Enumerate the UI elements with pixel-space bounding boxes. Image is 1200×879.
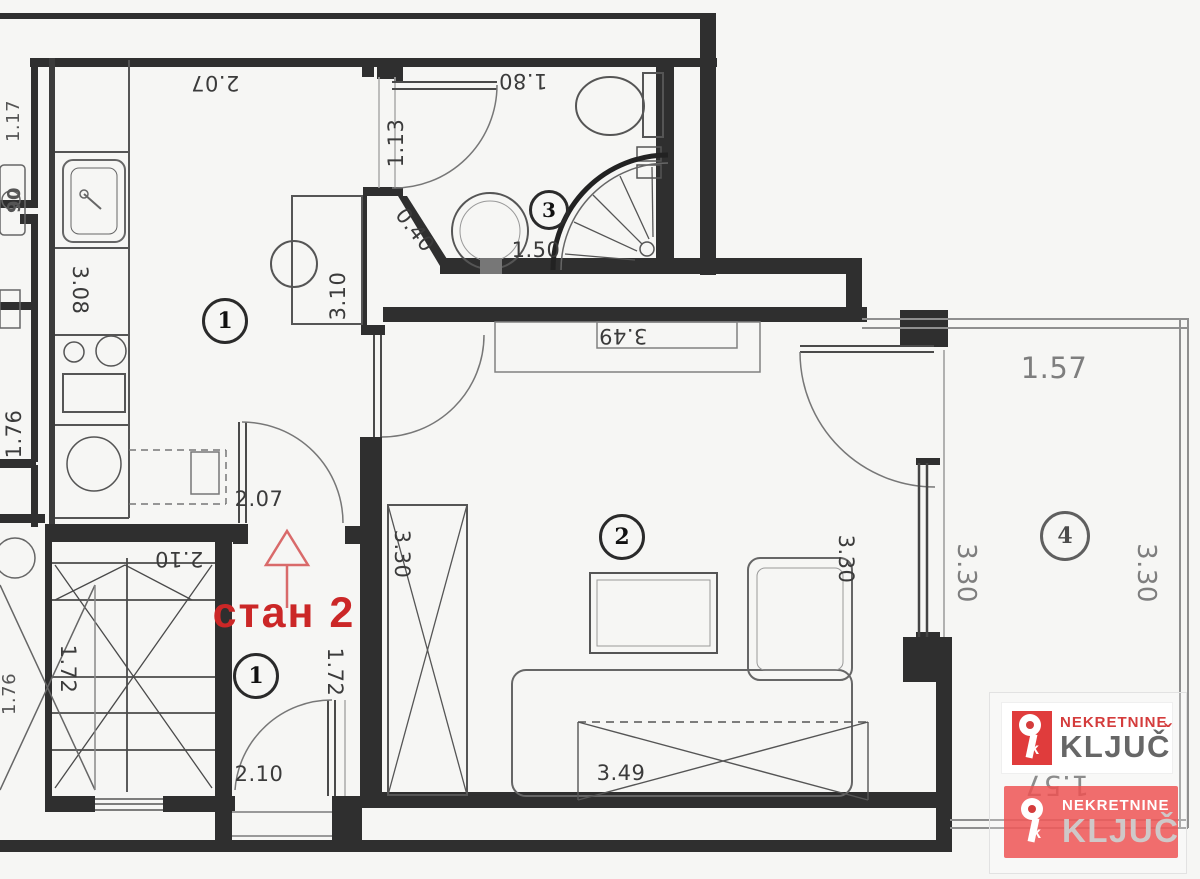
apartment-label: стан 2 [198,586,370,640]
table-icon [590,573,717,653]
room-marker-terrace: 4 [1040,511,1090,561]
dim-kitchen-width-bottom: 2.07 [226,484,292,514]
dim-terrace-width-top: 1.57 [1008,348,1100,388]
room-marker-kitchen: 1 [202,298,248,344]
dim-living-height-left: 3.30 [368,538,436,570]
dim-hall-width: 2.10 [226,758,292,790]
dim-kitchen-shaft: 3.10 [300,280,376,312]
window-staircase [95,796,163,812]
dim-terrace-height-right: 3.30 [1105,555,1187,591]
key-icon: k [1014,795,1054,849]
dim-bath-width: 1.80 [492,66,554,96]
walls [0,13,952,852]
dim-terrace-height-left: 3.30 [925,555,1007,591]
dim-bath-door: 1.13 [361,128,431,158]
kitchen-sink-icon [63,160,125,242]
brand-top-label: NEKRETNINE [1060,715,1171,730]
brand-main-text: KLJUČ [1062,812,1180,849]
toilet-icon [576,73,663,137]
floor-plan-image: 2.07 1.80 1.13 0.40 1.50 3.08 3.10 2.07 … [0,0,1200,879]
stove-icon [63,336,126,412]
dim-kitchen-width-top: 2.07 [183,68,247,98]
dim-neighbor-c: 1.76 [0,418,56,450]
room-marker-bathroom: 3 [529,190,569,230]
agency-logo-red: k NEKRETNINE KLJUČ [1004,786,1178,858]
window-living-room [919,350,944,637]
room-marker-hall: 1 [233,653,279,699]
brand-top-label: NEKRETNINE [1062,798,1180,813]
brand-main-label: KLJUČ [1062,814,1180,847]
kitchen-appliance-dashed [129,450,226,504]
dim-bath-length: 1.50 [505,236,567,264]
door-balcony [800,346,935,487]
key-letter: k [1032,825,1041,843]
door-living-room [374,335,484,437]
room-marker-living: 2 [599,514,645,560]
dim-neighbor-a: 1.17 [0,106,44,136]
brand-main-text: KLJUČ [1060,729,1171,764]
washing-machine-icon [67,437,121,491]
dim-hall-depth: 1.72 [299,655,371,689]
dim-living-sofa: 3.49 [586,756,656,790]
agency-logo-white: k NEKRETNINE KLJUČ ˇ [1001,702,1173,774]
key-letter: k [1030,741,1039,759]
dim-stairs-width: 2.10 [146,544,212,574]
dim-living-width-top: 3.49 [588,320,658,352]
dim-neighbor-d: 1.76 [0,679,51,709]
brand-main-label: KLJUČ ˇ [1060,731,1171,762]
sofa-icon [512,558,852,796]
dim-kitchen-counter: 3.08 [38,274,122,306]
dim-neighbor-b: 90 [0,188,32,212]
caron-accent: ˇ [1164,722,1173,744]
dim-living-height-right: 3.30 [811,543,881,575]
key-icon: k [1012,711,1052,765]
shower-icon [553,155,668,270]
